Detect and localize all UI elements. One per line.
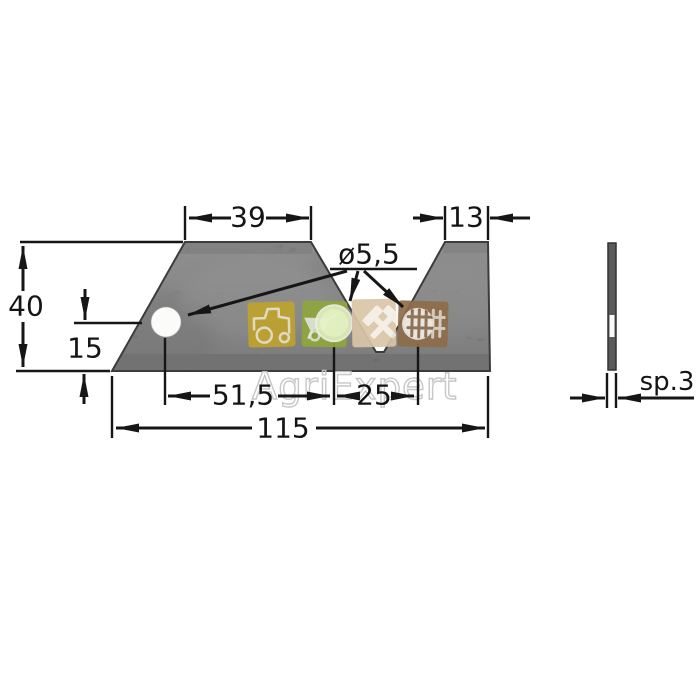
watermark-text: AgriExpert	[252, 365, 458, 408]
dim-39-label: 39	[230, 201, 266, 234]
dim-40-label: 40	[8, 290, 44, 323]
dim-13-label: 13	[448, 201, 484, 234]
dim-15-label: 15	[67, 332, 103, 365]
hole-diameter-label: ø5,5	[338, 238, 400, 271]
side-view-hole	[610, 315, 615, 337]
wheelbarrow-hole-highlight	[316, 305, 353, 342]
dim-25-label: 25	[356, 379, 392, 412]
fence-icon	[397, 300, 448, 347]
technical-drawing: AgriExpert	[0, 0, 700, 700]
tractor-icon	[247, 301, 295, 347]
left-hole	[151, 307, 181, 337]
side-view: sp.3	[570, 243, 694, 408]
side-view-bar	[608, 243, 616, 370]
leader-arrow-middle-hole	[350, 271, 358, 301]
thickness-label: sp.3	[640, 367, 695, 397]
dim-51-5-label: 51,5	[212, 379, 274, 412]
product-drawing-image: AgriExpert	[0, 0, 700, 700]
wheelbarrow-icon	[302, 301, 353, 348]
dim-115-label: 115	[256, 412, 309, 445]
